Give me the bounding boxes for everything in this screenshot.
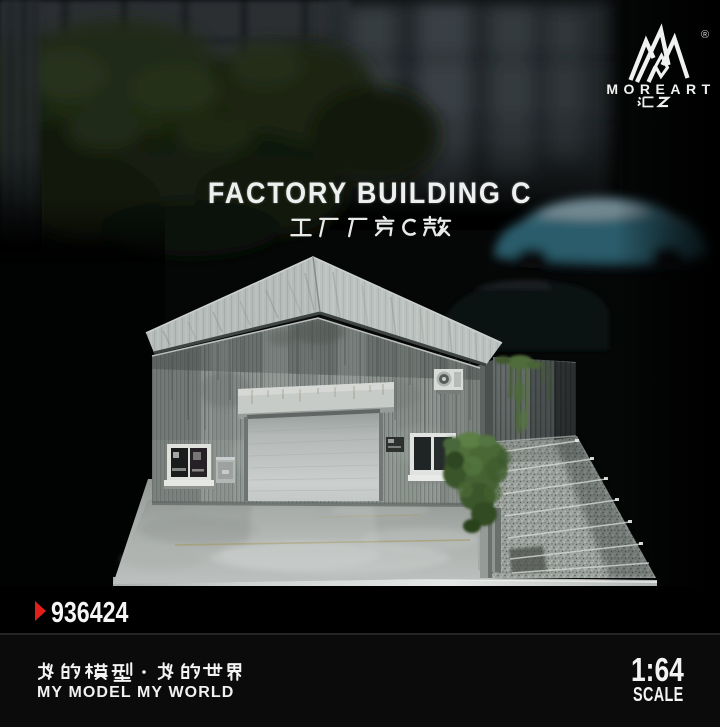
svg-text:®: ® <box>701 29 709 41</box>
